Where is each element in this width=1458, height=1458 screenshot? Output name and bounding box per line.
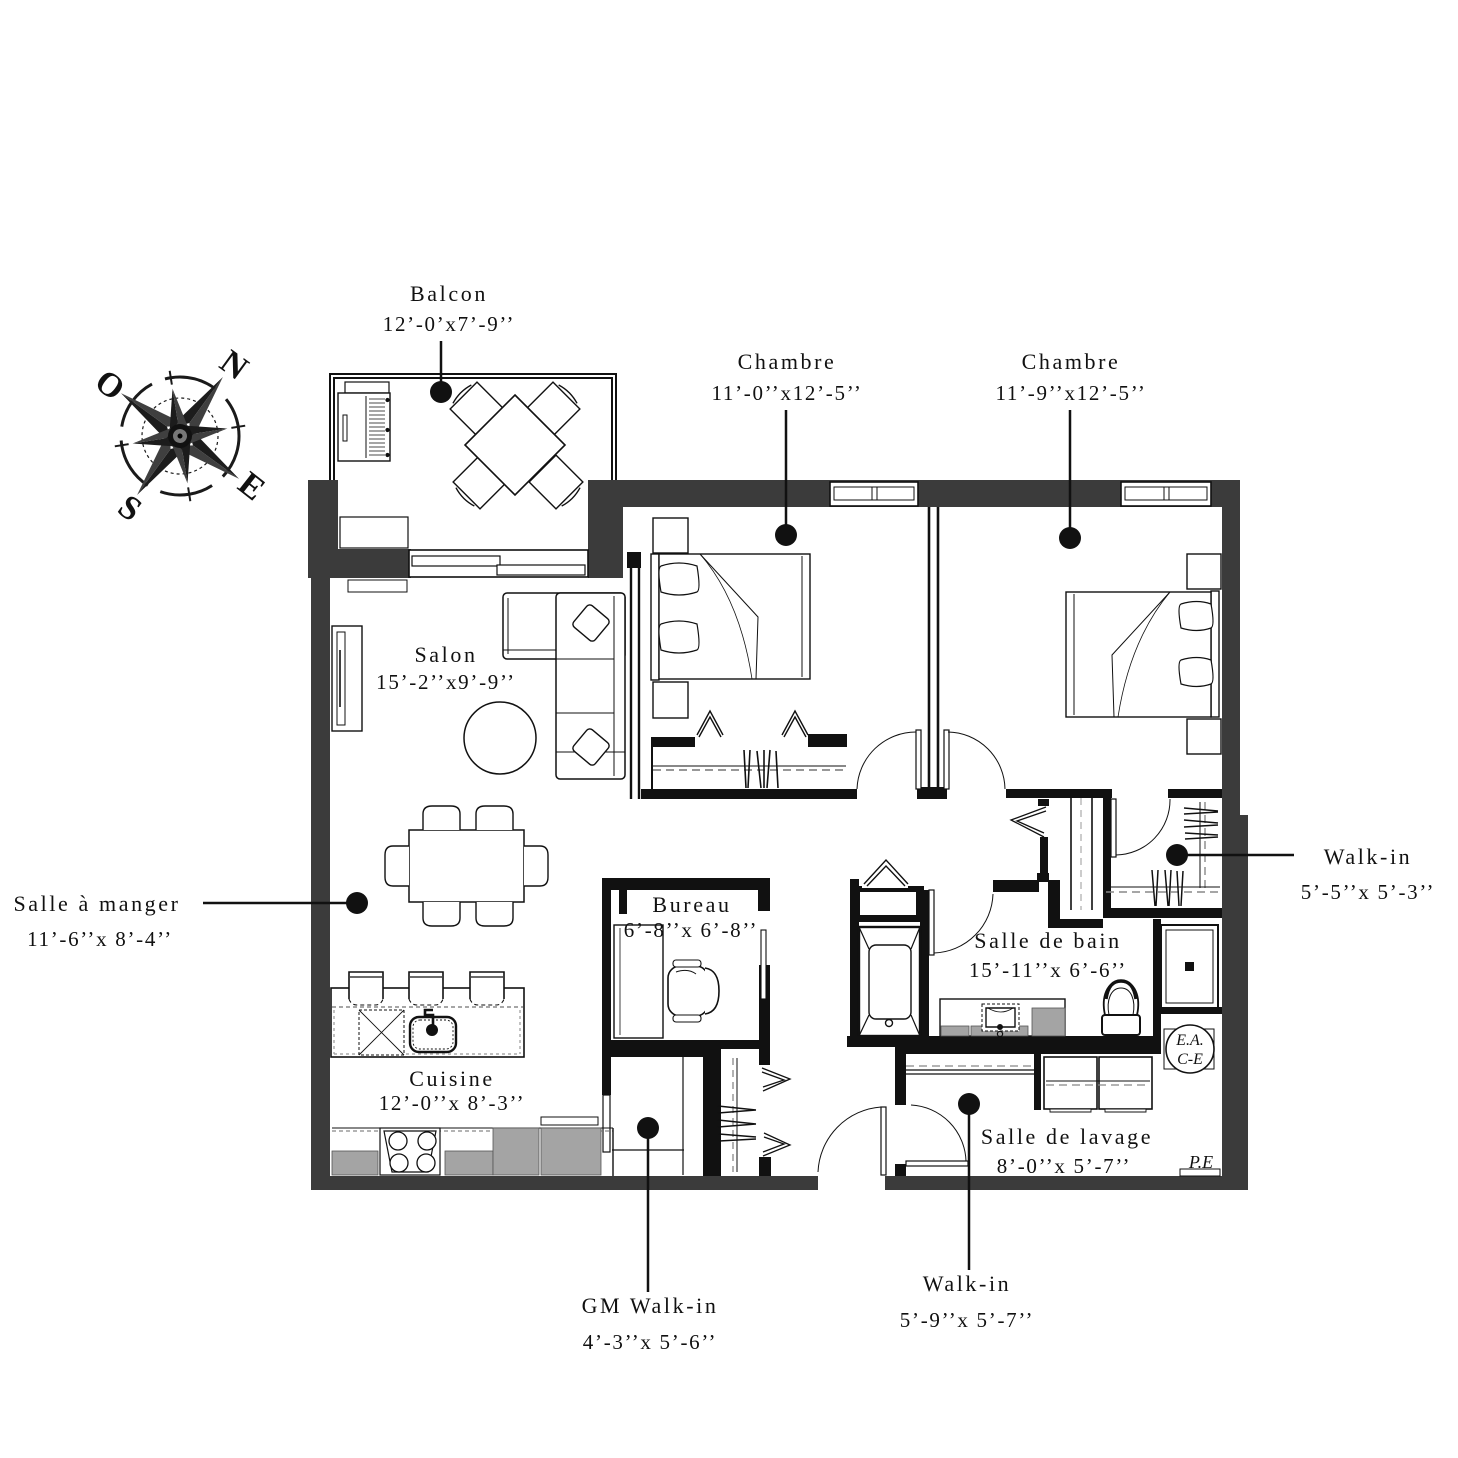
svg-text:Bureau: Bureau (652, 892, 731, 917)
svg-text:8’-0’’x 5’-7’’: 8’-0’’x 5’-7’’ (997, 1154, 1131, 1178)
svg-text:11’-6’’x 8’-4’’: 11’-6’’x 8’-4’’ (27, 927, 173, 951)
svg-text:15’-2’’x9’-9’’: 15’-2’’x9’-9’’ (376, 670, 516, 694)
svg-text:11’-0’’x12’-5’’: 11’-0’’x12’-5’’ (711, 381, 862, 405)
svg-text:Chambre: Chambre (738, 349, 837, 374)
svg-text:Cuisine: Cuisine (409, 1066, 494, 1091)
svg-text:12’-0’’x 8’-3’’: 12’-0’’x 8’-3’’ (379, 1091, 526, 1115)
svg-text:12’-0’x7’-9’’: 12’-0’x7’-9’’ (383, 312, 516, 336)
svg-text:C-E: C-E (1177, 1051, 1203, 1068)
svg-text:Walk-in: Walk-in (923, 1271, 1012, 1296)
svg-text:Salle à manger: Salle à manger (13, 891, 180, 916)
svg-text:11’-9’’x12’-5’’: 11’-9’’x12’-5’’ (995, 381, 1146, 405)
svg-text:6’-8’’x 6’-8’’: 6’-8’’x 6’-8’’ (624, 918, 758, 942)
svg-text:Salle de lavage: Salle de lavage (981, 1124, 1153, 1149)
svg-text:4’-3’’x 5’-6’’: 4’-3’’x 5’-6’’ (583, 1330, 717, 1354)
svg-text:Salon: Salon (414, 642, 477, 667)
svg-text:E.A.: E.A. (1175, 1032, 1204, 1049)
svg-text:15’-11’’x 6’-6’’: 15’-11’’x 6’-6’’ (969, 958, 1127, 982)
svg-text:5’-9’’x 5’-7’’: 5’-9’’x 5’-7’’ (900, 1308, 1034, 1332)
svg-text:Balcon: Balcon (410, 281, 488, 306)
svg-text:GM Walk-in: GM Walk-in (582, 1293, 719, 1318)
svg-text:Walk-in: Walk-in (1324, 844, 1413, 869)
svg-text:5’-5’’x 5’-3’’: 5’-5’’x 5’-3’’ (1301, 880, 1435, 904)
svg-text:Salle de bain: Salle de bain (974, 928, 1121, 953)
svg-text:P.E: P.E (1188, 1152, 1213, 1172)
svg-text:Chambre: Chambre (1022, 349, 1121, 374)
